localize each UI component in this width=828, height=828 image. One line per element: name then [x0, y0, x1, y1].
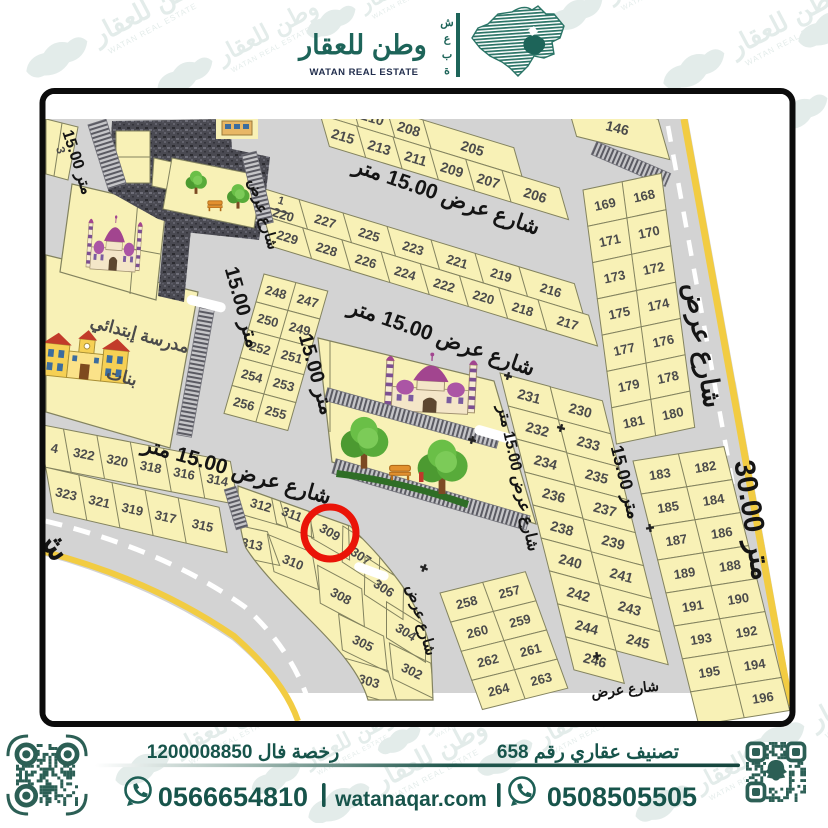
svg-text:watanaqar.com: watanaqar.com [334, 788, 487, 811]
svg-text:0508505505: 0508505505 [547, 782, 697, 812]
svg-text:ش: ش [440, 17, 453, 29]
svg-text:تصنيف عقاري رقم 658: تصنيف عقاري رقم 658 [497, 742, 679, 764]
svg-text:ع: ع [444, 33, 451, 45]
svg-text:ة: ة [444, 65, 450, 77]
svg-text:وطن للعقار: وطن للعقار [297, 30, 427, 62]
svg-text:WATAN REAL ESTATE: WATAN REAL ESTATE [310, 67, 419, 78]
svg-text:ب: ب [442, 49, 452, 61]
svg-text:رخصة فال 1200008850: رخصة فال 1200008850 [147, 742, 340, 763]
svg-text:0566654810: 0566654810 [158, 782, 308, 812]
